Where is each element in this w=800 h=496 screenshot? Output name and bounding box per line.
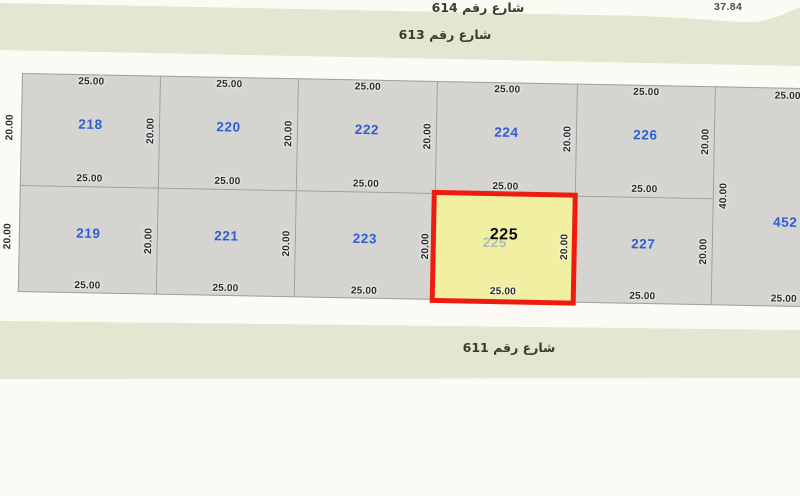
highlight-plot-number: 225	[436, 225, 572, 246]
plot-number-219: 219	[20, 225, 157, 243]
plot-number-223: 223	[296, 230, 434, 248]
parcel-452[interactable]: 45225.0025.0040.00	[711, 86, 800, 309]
plot-number-227: 227	[575, 235, 712, 253]
dim-side-left-row1: 20.00	[4, 107, 16, 147]
plot-map: شارع رقم 614 شارع رقم 613 شارع رقم 611 3…	[0, 0, 800, 496]
parcel-218[interactable]: 21825.0025.0020.00	[20, 73, 160, 188]
dim-bottom-226: 25.00	[576, 183, 713, 197]
dim-bottom-227: 25.00	[574, 290, 711, 304]
corner-measurement: 37.84	[714, 1, 742, 13]
dim-bottom-218: 25.00	[21, 172, 158, 186]
street-band-611	[0, 321, 800, 379]
street-label-614: شارع رقم 614	[432, 0, 525, 15]
plot-number-220: 220	[160, 118, 297, 136]
parcel-219[interactable]: 21925.0020.00	[18, 185, 158, 295]
dim-top-220: 25.00	[161, 78, 298, 92]
dim-side-452: 40.00	[718, 176, 730, 216]
parcel-223[interactable]: 22325.0020.00	[294, 190, 435, 300]
dim-side-221: 20.00	[281, 223, 293, 263]
plot-number-224: 224	[437, 123, 576, 141]
dim-bottom-221: 25.00	[157, 282, 294, 296]
dim-side-224: 20.00	[562, 119, 574, 159]
dim-side-226: 20.00	[700, 122, 712, 162]
plot-number-218: 218	[22, 115, 159, 133]
parcel-224[interactable]: 22425.0025.0020.00	[435, 81, 577, 196]
dim-bottom-220: 25.00	[159, 175, 296, 189]
street-label-611: شارع رقم 611	[463, 340, 556, 355]
dim-top-226: 25.00	[578, 86, 715, 100]
dim-bottom-219: 25.00	[19, 279, 156, 293]
parcel-225[interactable]: 22522525.0020.00	[430, 190, 578, 306]
plot-number-222: 222	[298, 121, 436, 139]
dim-top-218: 25.00	[23, 75, 160, 89]
dim-side-223: 20.00	[420, 226, 432, 266]
parcel-226[interactable]: 22625.0025.0020.00	[575, 84, 715, 199]
dim-side-218: 20.00	[145, 111, 157, 151]
dim-side-225: 20.00	[559, 227, 571, 267]
dim-side-220: 20.00	[283, 114, 295, 154]
dim-side-219: 20.00	[143, 220, 155, 260]
plot-number-452: 452	[755, 214, 800, 230]
parcel-221[interactable]: 22125.0020.00	[156, 188, 296, 298]
dim-side-222: 20.00	[422, 116, 434, 156]
dim-top-222: 25.00	[299, 80, 437, 94]
dim-bottom-225: 25.00	[435, 285, 571, 299]
plot-number-226: 226	[577, 126, 714, 144]
parcel-block: 21825.0025.0020.0022025.0025.0020.002222…	[18, 73, 800, 310]
plot-number-221: 221	[158, 227, 295, 245]
street-label-613: شارع رقم 613	[399, 27, 492, 42]
dim-top-224: 25.00	[438, 83, 577, 97]
dim-top-452: 25.00	[758, 90, 800, 102]
dim-bottom-222: 25.00	[297, 177, 435, 191]
dim-side-227: 20.00	[698, 231, 710, 271]
dim-bottom-223: 25.00	[295, 284, 433, 298]
dim-side-left-row2: 20.00	[2, 216, 14, 256]
parcel-222[interactable]: 22225.0025.0020.00	[296, 78, 437, 193]
dim-bottom-452: 25.00	[754, 293, 800, 305]
parcel-220[interactable]: 22025.0025.0020.00	[158, 76, 298, 191]
parcel-227[interactable]: 22725.0020.00	[573, 196, 713, 306]
